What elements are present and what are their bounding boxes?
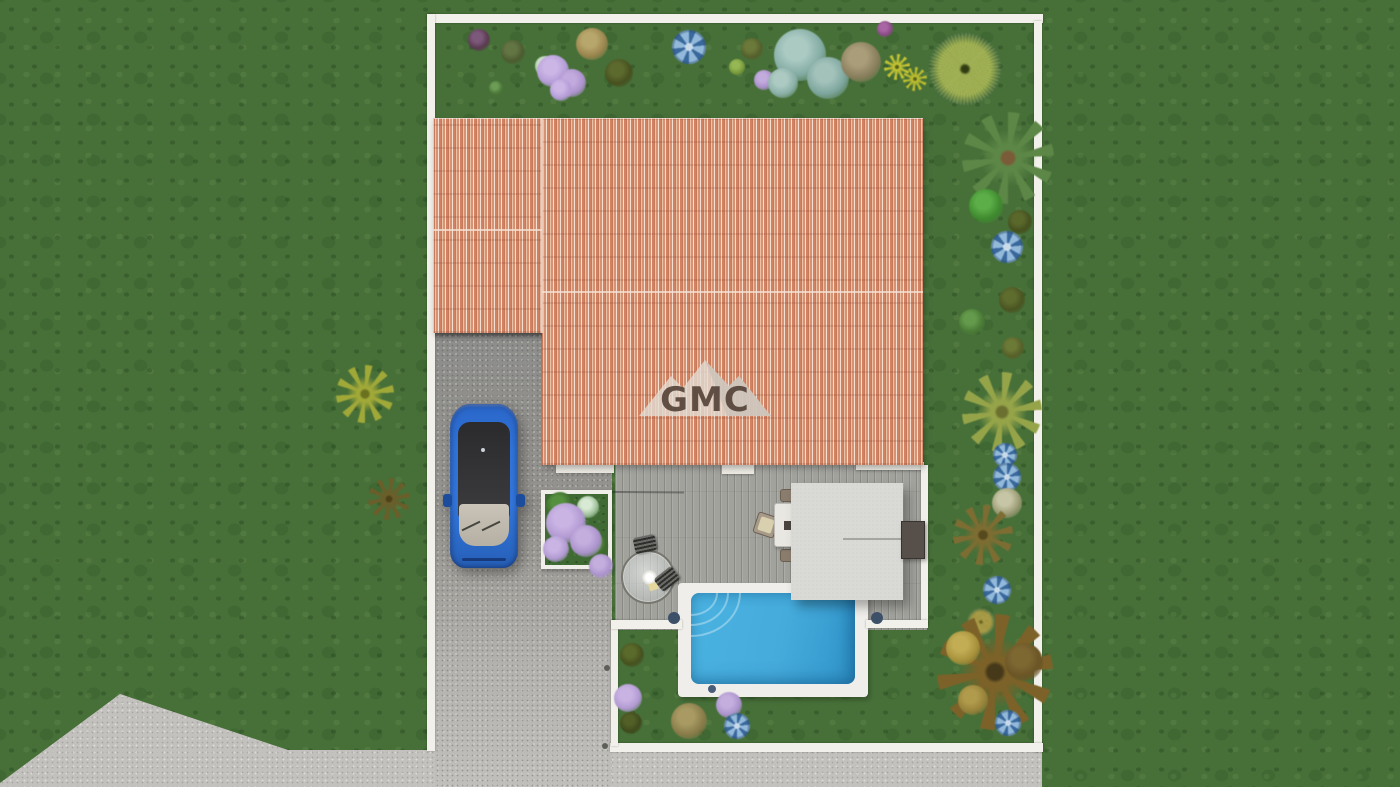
garden-edging-vertical: [611, 620, 618, 746]
fern-brown: [953, 505, 1013, 565]
bush-bright-green: [969, 189, 1003, 223]
bush-green-small: [489, 81, 503, 95]
blue-pinwheel-flower: [672, 30, 706, 64]
lilac-shrub: [614, 684, 642, 712]
site-plan-render: GMC: [0, 0, 1400, 787]
pergola-canopy: [791, 483, 903, 600]
blue-pinwheel-flower: [991, 231, 1023, 263]
gmc-logo-text: GMC: [635, 380, 775, 420]
lilac-shrub: [550, 79, 572, 101]
car-mirror-left: [443, 494, 452, 507]
autumn-shadow: [1005, 643, 1043, 681]
boundary-wall-bottom: [610, 743, 1043, 752]
roof-seam: [541, 118, 543, 333]
navy-dot-plant: [708, 685, 716, 693]
fern-brown: [368, 478, 410, 520]
pool-water: [691, 593, 855, 684]
bush-green: [959, 309, 985, 335]
gmc-watermark: GMC: [635, 356, 775, 430]
bush-dark-olive: [605, 59, 633, 87]
roof-ridge: [542, 291, 923, 293]
house-threshold-slab: [722, 465, 754, 474]
drain-cap: [604, 665, 610, 671]
car-windshield: [459, 504, 509, 546]
palm-tree-green: [962, 112, 1054, 204]
swimming-pool: [678, 583, 868, 697]
navy-dot-plant: [668, 612, 680, 624]
blue-pinwheel-flower: [995, 710, 1021, 736]
yellow-daisy: [903, 67, 927, 91]
round-tree-yellow-green: [929, 33, 1001, 105]
parked-car: [450, 404, 518, 568]
navy-dot-plant: [871, 612, 883, 624]
planter-lilac: [543, 536, 569, 562]
garage-roof: [433, 118, 542, 333]
blue-pinwheel-flower: [983, 576, 1011, 604]
bush-olive: [1002, 337, 1024, 359]
bush-tan: [671, 703, 707, 739]
bush-dark-olive: [999, 287, 1025, 313]
outdoor-kitchen-unit: [901, 521, 925, 559]
bush-tan-gray: [841, 42, 881, 82]
bush-dark-purple: [468, 29, 490, 51]
bush-olive: [741, 38, 763, 60]
autumn-highlight: [958, 685, 988, 715]
bush-yellow-green: [729, 59, 745, 75]
glaucous-shrub: [768, 68, 798, 98]
bush-tan: [576, 28, 608, 60]
bush-dark: [620, 712, 642, 734]
bush-dark-olive: [1008, 210, 1032, 234]
blue-pinwheel-flower: [993, 463, 1021, 491]
planter-lilac: [589, 554, 613, 578]
garage-door-shadow: [435, 333, 542, 339]
boundary-wall-top: [427, 14, 1043, 23]
car-mirror-right: [516, 494, 525, 507]
bush-olive: [501, 40, 525, 64]
car-antenna: [481, 448, 485, 452]
roof-ridge: [433, 229, 542, 231]
planter-lilac: [570, 525, 602, 557]
bush-magenta: [877, 21, 893, 37]
autumn-highlight: [946, 631, 980, 665]
car-front-grill: [462, 558, 506, 561]
blue-pinwheel-flower: [724, 713, 750, 739]
drain-cap: [602, 743, 608, 749]
bush-dark-olive: [620, 643, 644, 667]
yucca-yellow: [336, 365, 394, 423]
palm-tree-yellow: [962, 372, 1042, 452]
house-threshold-slab: [556, 464, 614, 473]
